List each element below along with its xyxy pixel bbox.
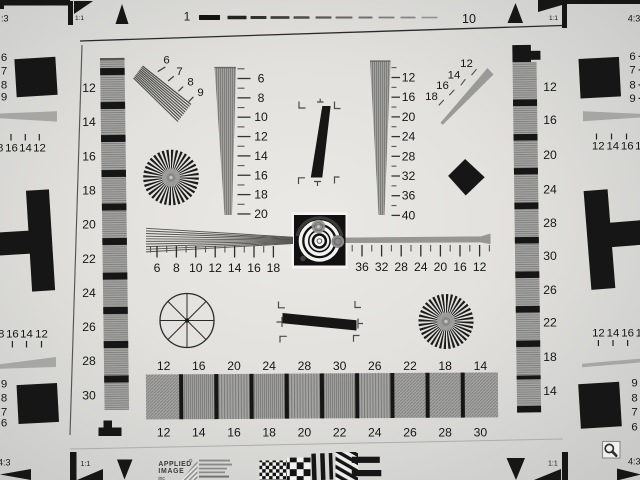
svg-text:24: 24 [414,260,428,274]
svg-text:12: 12 [157,359,171,373]
svg-text:30: 30 [333,359,347,373]
svg-text:6: 6 [1,418,7,430]
svg-text:30: 30 [474,426,488,440]
svg-text:24: 24 [402,130,416,144]
svg-text::3: :3 [1,14,9,24]
svg-text:14: 14 [228,261,242,275]
svg-text:8: 8 [187,77,193,89]
svg-text:14: 14 [448,69,461,81]
svg-text:6: 6 [631,422,637,434]
svg-text:28: 28 [394,260,408,274]
svg-text:14: 14 [607,328,620,340]
svg-text:6: 6 [1,52,7,64]
svg-text:28: 28 [543,216,557,230]
svg-text:4:3: 4:3 [628,457,640,467]
svg-text:7: 7 [176,66,182,78]
svg-text:6: 6 [258,72,265,86]
svg-text:8: 8 [629,80,635,92]
svg-text:20: 20 [543,148,557,162]
svg-text:30: 30 [543,249,557,263]
svg-text:36: 36 [355,260,369,274]
svg-text:16: 16 [254,168,268,182]
svg-text:14: 14 [606,141,619,153]
svg-text:inc: inc [158,476,165,480]
svg-text:20: 20 [402,110,416,124]
svg-text:16: 16 [192,359,206,373]
svg-text:1:1: 1:1 [75,15,84,22]
svg-text:16: 16 [436,80,449,92]
svg-text:18: 18 [635,141,640,153]
svg-text:24: 24 [543,183,557,197]
svg-text:9: 9 [629,93,635,105]
svg-text:8: 8 [1,393,7,405]
svg-text:16: 16 [543,113,557,127]
svg-text:12: 12 [157,426,171,440]
svg-text:26: 26 [543,283,557,297]
svg-text:16: 16 [402,90,416,104]
svg-text:12: 12 [543,80,557,94]
svg-text:4:3: 4:3 [628,14,640,24]
svg-text:20: 20 [254,207,268,221]
svg-text:12: 12 [473,260,487,274]
svg-text:16: 16 [6,329,19,341]
svg-text:18: 18 [82,183,96,197]
svg-text:7: 7 [631,406,637,418]
svg-text:16: 16 [5,143,18,155]
svg-text:9: 9 [1,379,7,391]
svg-text:26: 26 [403,426,417,440]
svg-text:20: 20 [82,218,96,232]
svg-text:12: 12 [592,141,605,153]
svg-text:7: 7 [1,66,7,78]
svg-text:4:3: 4:3 [0,458,11,468]
svg-text:14: 14 [192,426,206,440]
svg-text:12: 12 [402,71,416,85]
svg-text:14: 14 [543,384,557,398]
svg-text:18: 18 [267,261,281,275]
svg-text:20: 20 [227,359,241,373]
svg-text:14: 14 [82,115,96,129]
svg-text:IMAGE: IMAGE [158,468,184,475]
svg-text:16: 16 [247,261,261,275]
svg-text:8: 8 [258,91,265,105]
svg-text:16: 16 [82,149,96,163]
svg-text:14: 14 [474,359,488,373]
svg-text:18: 18 [543,350,557,364]
svg-text:18: 18 [254,188,268,202]
svg-text:18: 18 [0,329,4,341]
svg-text:12: 12 [460,58,473,70]
svg-text:9: 9 [1,92,7,104]
svg-text:1:1: 1:1 [548,461,558,468]
svg-text:7: 7 [629,65,635,77]
svg-text:28: 28 [82,354,96,368]
svg-text:12: 12 [592,328,605,340]
svg-text:24: 24 [368,426,382,440]
svg-text:30: 30 [82,388,96,402]
svg-text:22: 22 [333,426,347,440]
svg-text:8: 8 [1,80,7,92]
svg-text:12: 12 [254,130,268,144]
svg-text:APPLIED: APPLIED [158,461,191,468]
svg-text:32: 32 [402,169,416,183]
svg-text:1:1: 1:1 [81,461,91,468]
svg-text:10: 10 [254,110,268,124]
svg-text:40: 40 [402,208,416,222]
svg-text:18: 18 [438,359,452,373]
svg-text:1: 1 [184,10,191,24]
svg-text:14: 14 [20,329,33,341]
svg-text:24: 24 [262,359,276,373]
svg-text:20: 20 [298,426,312,440]
svg-text:18: 18 [262,426,276,440]
svg-text:18: 18 [425,91,438,103]
svg-text:16: 16 [227,426,241,440]
svg-text:6: 6 [154,261,161,275]
svg-text:9: 9 [631,377,637,389]
svg-text:22: 22 [543,316,557,330]
svg-text:32: 32 [375,260,389,274]
svg-text:9: 9 [197,87,203,99]
svg-text:26: 26 [82,320,96,334]
svg-text:12: 12 [82,81,96,95]
svg-text:12: 12 [35,329,48,341]
svg-text:10: 10 [462,12,476,26]
svg-text:1:1: 1:1 [549,15,558,22]
svg-text:12: 12 [33,143,46,155]
svg-text:22: 22 [82,252,96,266]
svg-text:8: 8 [631,393,637,405]
svg-text:16: 16 [621,141,634,153]
svg-text:16: 16 [621,328,634,340]
svg-text:12: 12 [208,261,222,275]
svg-text:10: 10 [189,261,203,275]
svg-text:28: 28 [298,359,312,373]
svg-text:16: 16 [453,260,467,274]
svg-text:28: 28 [402,149,416,163]
svg-text:8: 8 [173,261,180,275]
svg-text:24: 24 [82,286,96,300]
svg-text:6: 6 [629,51,635,63]
svg-text:18: 18 [0,143,3,155]
svg-text:18: 18 [636,328,640,340]
svg-text:22: 22 [403,359,417,373]
svg-text:14: 14 [19,143,32,155]
svg-text:36: 36 [402,189,416,203]
svg-text:20: 20 [434,260,448,274]
svg-text:28: 28 [438,426,452,440]
svg-text:14: 14 [254,149,268,163]
svg-text:26: 26 [368,359,382,373]
svg-text:6: 6 [163,55,169,67]
